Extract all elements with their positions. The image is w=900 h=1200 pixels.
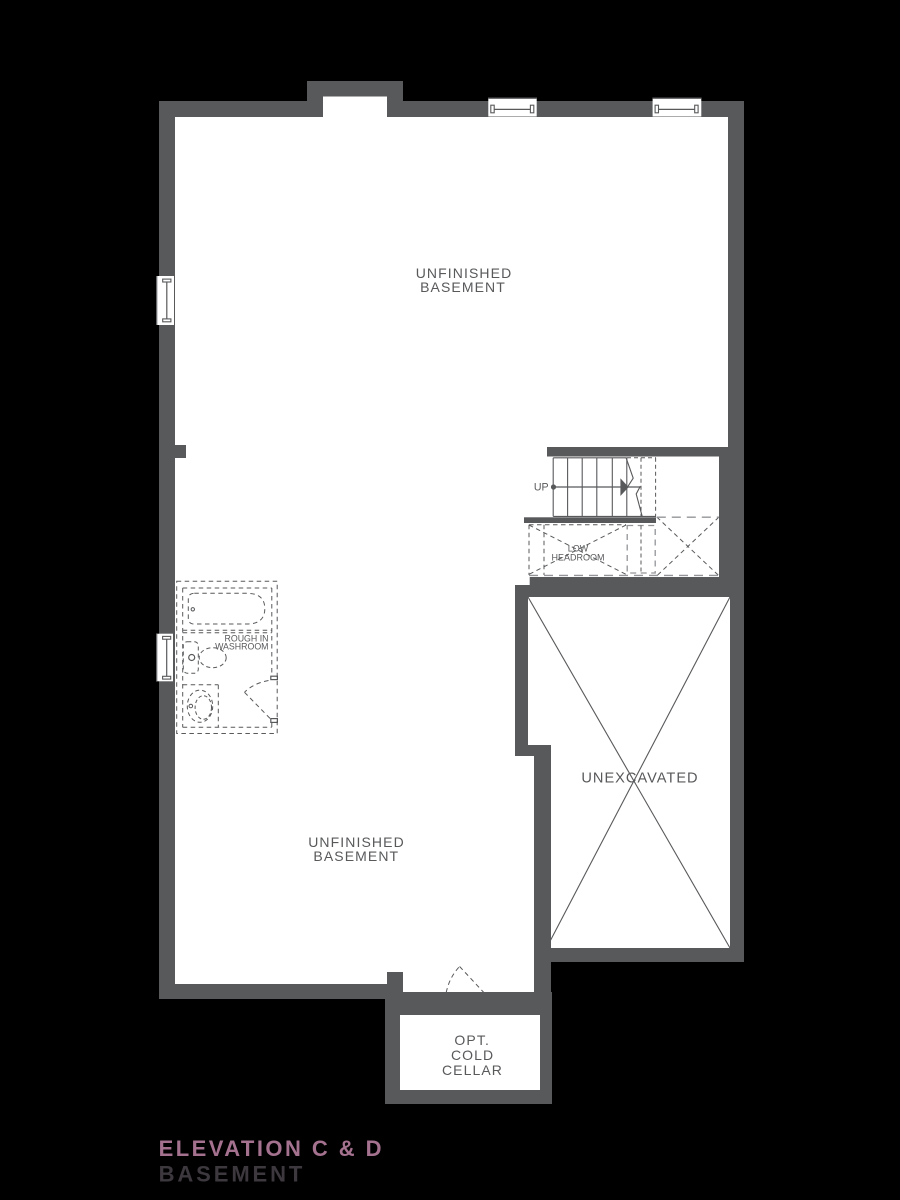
svg-text:UP: UP — [534, 481, 549, 493]
svg-text:COLD: COLD — [451, 1047, 494, 1063]
svg-text:HEADROOM: HEADROOM — [551, 553, 604, 563]
svg-text:WASHROOM: WASHROOM — [215, 641, 268, 651]
svg-text:BASEMENT: BASEMENT — [159, 1161, 306, 1186]
svg-text:UNEXCAVATED: UNEXCAVATED — [581, 771, 698, 787]
svg-text:BASEMENT: BASEMENT — [313, 848, 399, 864]
svg-text:CELLAR: CELLAR — [442, 1062, 503, 1078]
svg-text:BASEMENT: BASEMENT — [420, 279, 506, 295]
svg-text:ELEVATION C & D: ELEVATION C & D — [159, 1136, 384, 1161]
svg-text:OPT.: OPT. — [454, 1032, 490, 1048]
